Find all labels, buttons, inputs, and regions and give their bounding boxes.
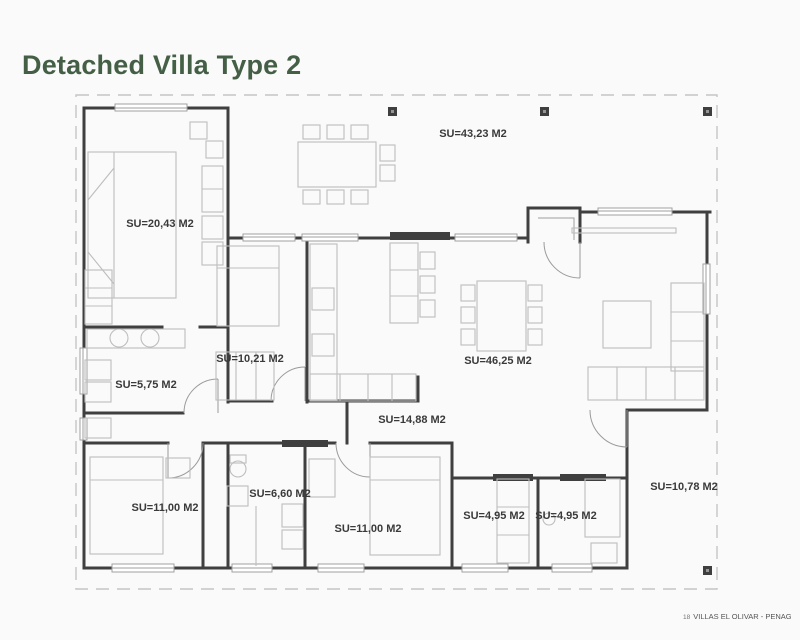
furniture <box>85 122 704 566</box>
floor-plan: SU=43,23 M2 SU=20,43 M2 SU=10,21 M2 SU=5… <box>0 0 800 640</box>
room-label-bedroom-3: SU=11,00 M2 <box>132 502 199 514</box>
room-label-bathroom-1: SU=5,75 M2 <box>115 379 176 391</box>
walls <box>84 108 710 568</box>
room-label-bathroom-2: SU=6,60 M2 <box>249 488 310 500</box>
footer-credit: 18VILLAS EL OLIVAR - PENAGUILA <box>683 612 791 621</box>
pillars <box>388 107 712 575</box>
room-label-living-dining: SU=46,25 M2 <box>464 355 532 367</box>
room-label-bedroom-4: SU=11,00 M2 <box>335 523 402 535</box>
footer-text: VILLAS EL OLIVAR - PENAGUILA <box>693 612 791 621</box>
slide: Detached Villa Type 2 <box>0 0 800 640</box>
room-label-bedroom-1: SU=20,43 M2 <box>126 218 194 230</box>
room-label-side-terrace: SU=10,78 M2 <box>650 481 718 493</box>
room-label-storage-1: SU=4,95 M2 <box>463 510 524 522</box>
plot-boundary <box>76 95 717 589</box>
footer-logo: 18 <box>683 614 690 621</box>
room-label-front-terrace: SU=43,23 M2 <box>439 128 507 140</box>
room-label-bedroom-2: SU=10,21 M2 <box>216 353 284 365</box>
room-label-kitchen-hall: SU=14,88 M2 <box>378 414 446 426</box>
room-label-storage-2: SU=4,95 M2 <box>535 510 596 522</box>
